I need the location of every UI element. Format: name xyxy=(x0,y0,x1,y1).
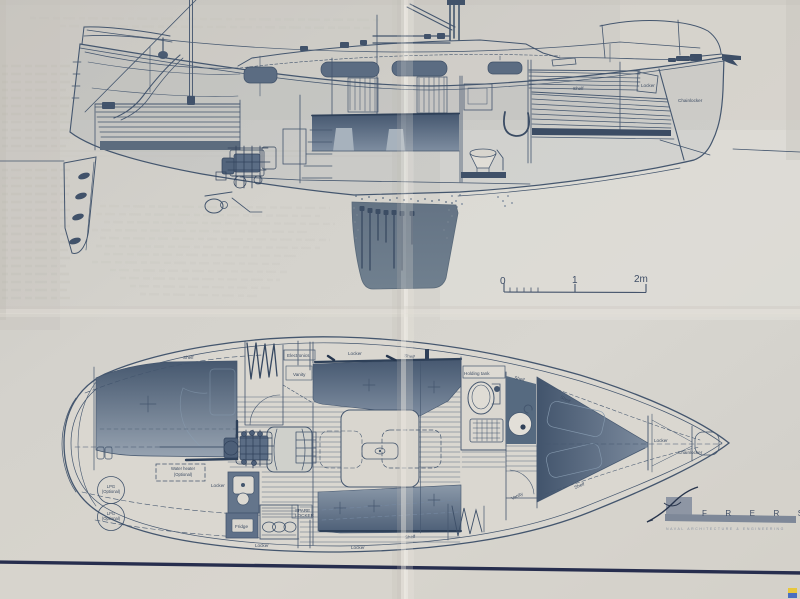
svg-text:Locker: Locker xyxy=(211,483,225,488)
svg-text:(Optional): (Optional) xyxy=(174,472,193,477)
svg-text:Chainlocker: Chainlocker xyxy=(678,98,703,103)
svg-text:Locker: Locker xyxy=(654,438,668,443)
svg-text:Water heater: Water heater xyxy=(171,466,196,471)
svg-text:Chainlocker: Chainlocker xyxy=(678,450,703,455)
svg-text:LOCKER: LOCKER xyxy=(295,513,315,518)
svg-text:Locker: Locker xyxy=(641,83,655,88)
svg-text:Vanity: Vanity xyxy=(293,372,306,377)
svg-text:Locker: Locker xyxy=(348,351,362,356)
svg-text:FRERS: FRERS xyxy=(702,509,800,518)
svg-text:Fridge: Fridge xyxy=(235,524,248,529)
svg-text:2m: 2m xyxy=(634,274,648,285)
svg-text:Locker: Locker xyxy=(255,543,269,548)
svg-text:Shelf: Shelf xyxy=(183,355,194,360)
svg-text:NAVAL ARCHITECTURE & ENGINEERI: NAVAL ARCHITECTURE & ENGINEERING xyxy=(666,527,785,531)
svg-text:0: 0 xyxy=(500,276,506,287)
svg-text:Shelf: Shelf xyxy=(573,86,584,91)
svg-text:Holding tank: Holding tank xyxy=(464,371,490,376)
svg-text:(Optional): (Optional) xyxy=(102,516,121,521)
svg-text:(Optional): (Optional) xyxy=(102,489,121,494)
svg-text:Locker: Locker xyxy=(351,545,365,550)
svg-text:Electronics: Electronics xyxy=(287,353,310,358)
svg-text:1: 1 xyxy=(572,275,578,286)
